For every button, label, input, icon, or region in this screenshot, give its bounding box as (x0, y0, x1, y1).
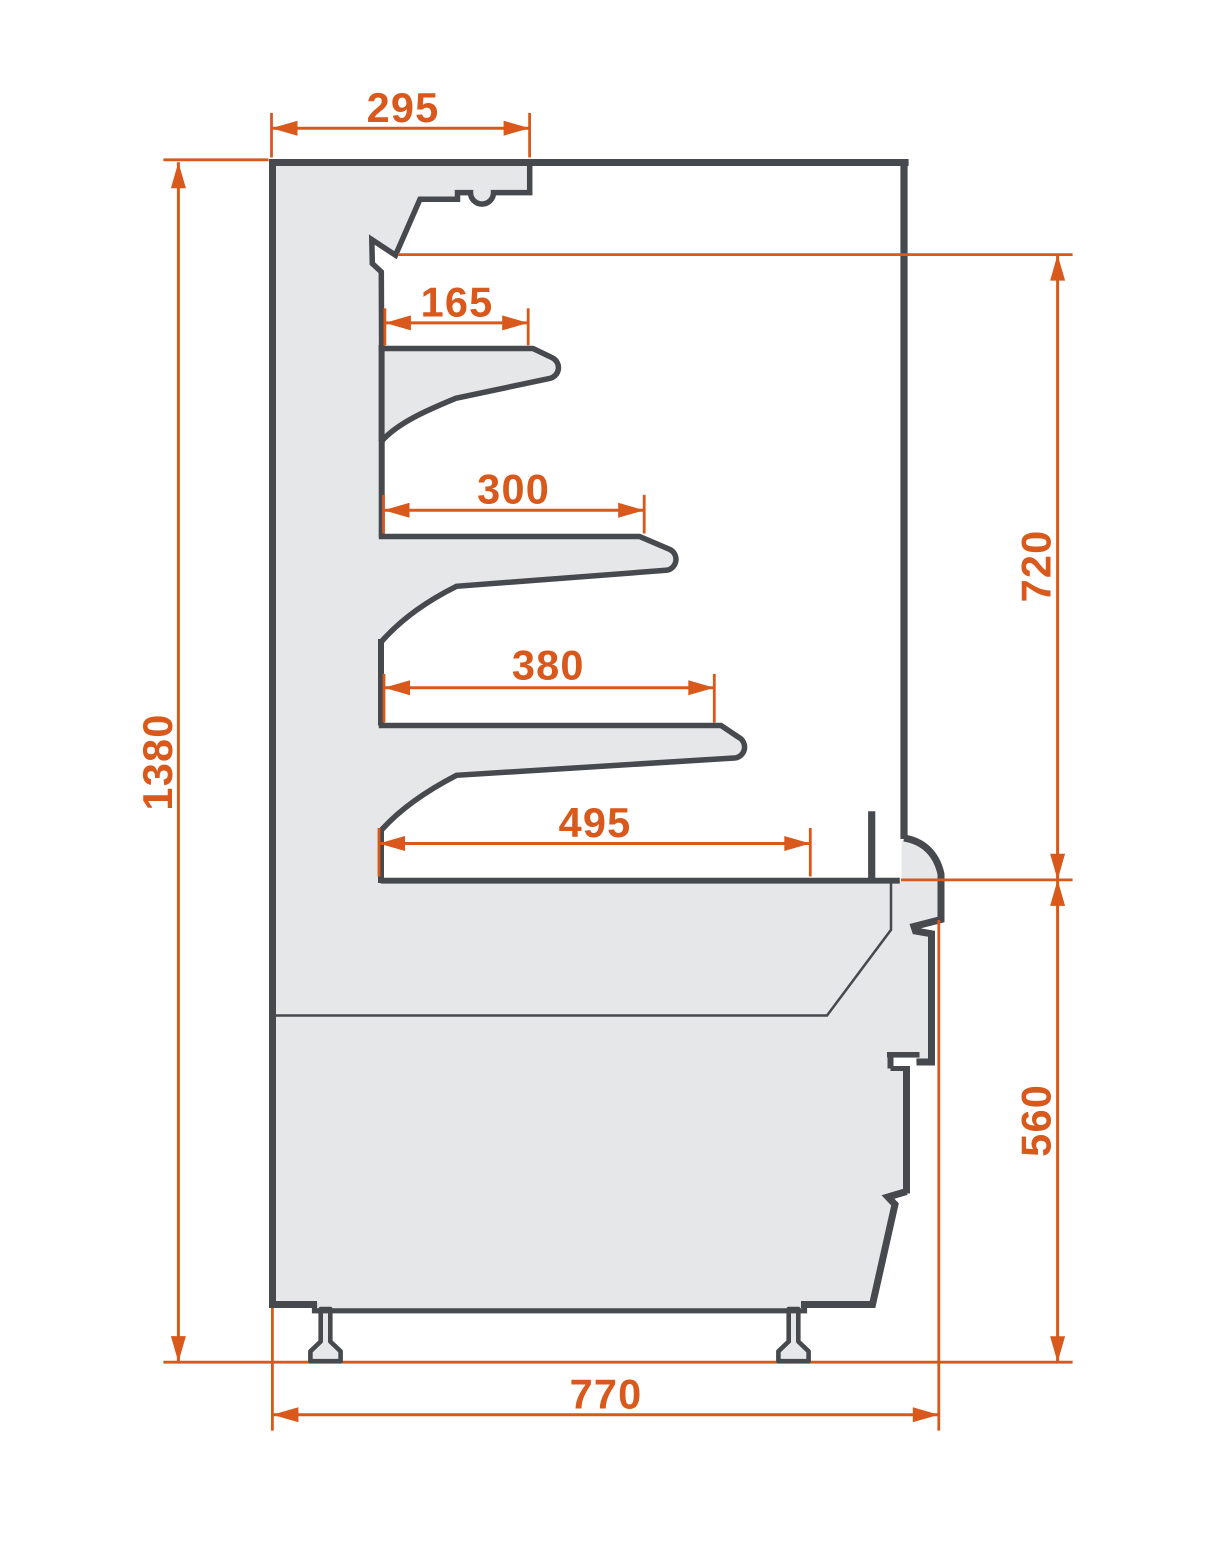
svg-text:165: 165 (421, 279, 494, 326)
svg-text:560: 560 (1013, 1084, 1060, 1157)
svg-text:1380: 1380 (134, 713, 181, 810)
svg-text:300: 300 (477, 466, 550, 513)
svg-text:380: 380 (512, 642, 585, 689)
svg-text:295: 295 (367, 84, 440, 131)
svg-text:495: 495 (559, 799, 632, 846)
svg-text:720: 720 (1013, 530, 1060, 603)
svg-text:770: 770 (570, 1371, 643, 1418)
